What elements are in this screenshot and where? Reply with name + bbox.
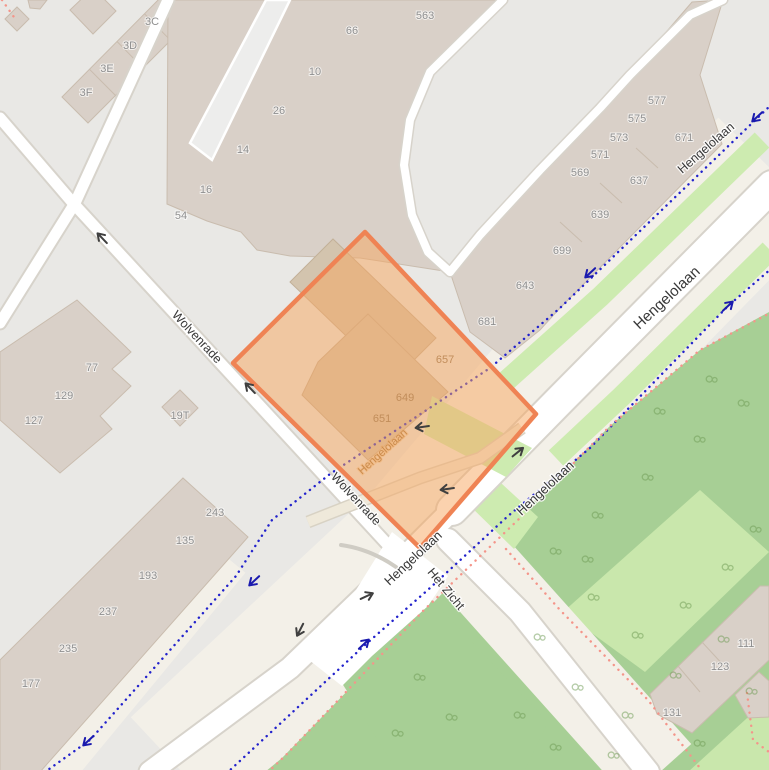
house-number: 14 [237,144,249,156]
house-number: 699 [553,245,571,257]
house-number: 193 [139,570,157,582]
house-number: 3E [100,63,113,75]
house-number: 129 [55,390,73,402]
map-canvas[interactable]: 657649651Hengelolaan 3C3D3E3F66563102614… [0,0,769,770]
house-number: 66 [346,25,358,37]
house-number: 671 [675,132,693,144]
map-viewport[interactable]: 657649651Hengelolaan 3C3D3E3F66563102614… [0,0,769,770]
house-number: 77 [86,362,98,374]
house-number: 243 [206,507,224,519]
house-number: 575 [628,113,646,125]
house-number: 19T [171,410,190,422]
house-number: 16 [200,184,212,196]
house-number: 177 [22,678,40,690]
house-number: 3D [123,40,137,52]
house-number: 643 [516,280,534,292]
house-number: 3F [80,87,93,99]
house-number: 127 [25,415,43,427]
house-number: 569 [571,167,589,179]
house-number: 573 [610,132,628,144]
house-number: 681 [478,316,496,328]
house-number: 135 [176,535,194,547]
house-number: 3C [145,16,159,28]
house-number: 571 [591,149,609,161]
house-number: 237 [99,606,117,618]
house-number: 26 [273,105,285,117]
house-number: 577 [648,95,666,107]
house-number: 10 [309,66,321,78]
house-number: 235 [59,643,77,655]
house-number: 639 [591,209,609,221]
house-number: 637 [630,175,648,187]
house-number: 111 [738,638,755,650]
house-number: 123 [711,661,729,673]
house-number: 54 [175,210,187,222]
house-number: 131 [663,707,681,719]
house-number: 563 [416,10,434,22]
